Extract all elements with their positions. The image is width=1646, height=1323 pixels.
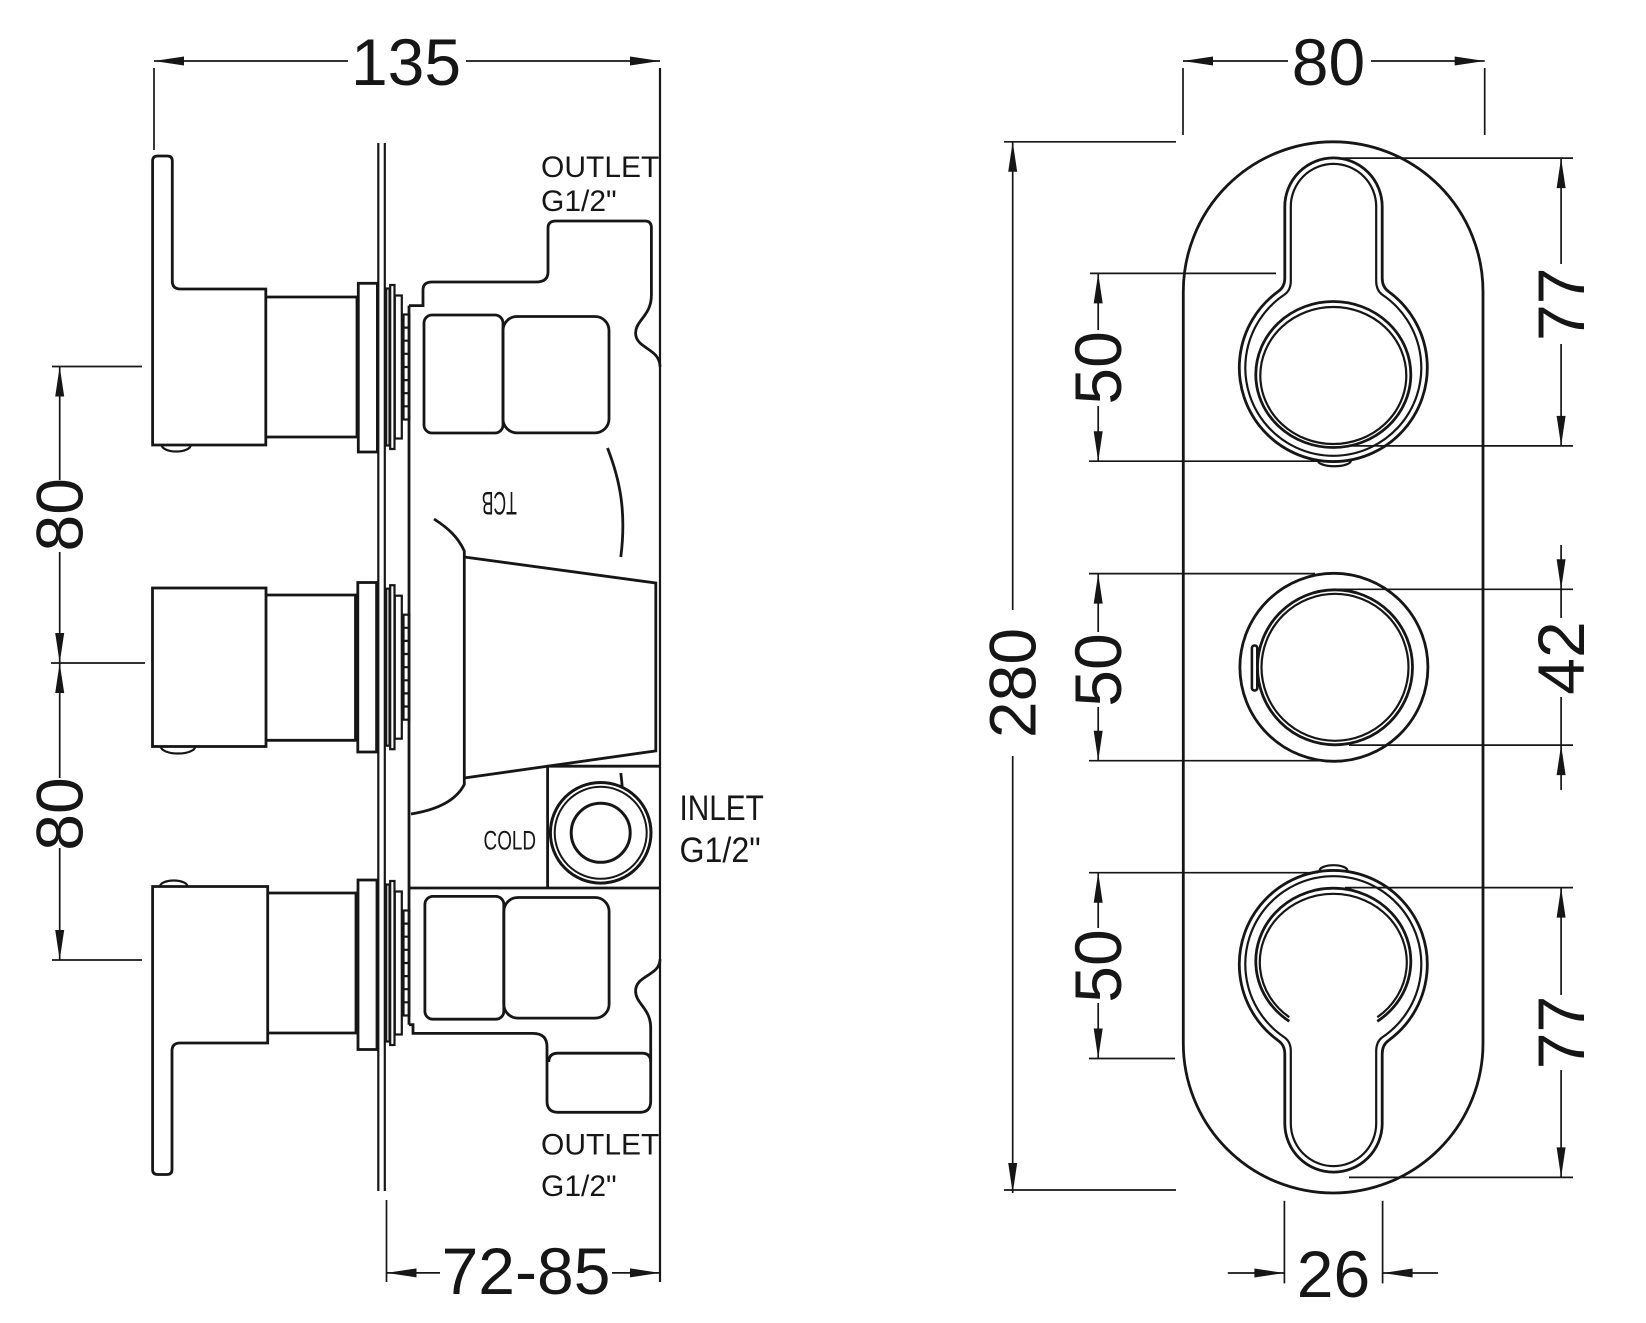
- svg-text:50: 50: [1061, 929, 1135, 1002]
- svg-text:INLET: INLET: [680, 789, 764, 828]
- svg-text:80: 80: [23, 777, 97, 850]
- svg-text:77: 77: [1524, 996, 1598, 1069]
- svg-text:50: 50: [1061, 331, 1135, 404]
- svg-text:72-85: 72-85: [442, 1234, 611, 1308]
- svg-text:G1/2": G1/2": [541, 1170, 617, 1203]
- svg-text:TCB: TCB: [482, 485, 517, 520]
- svg-text:80: 80: [23, 478, 97, 551]
- svg-text:COLD: COLD: [484, 825, 536, 855]
- svg-text:OUTLET: OUTLET: [541, 1128, 659, 1161]
- svg-text:77: 77: [1524, 268, 1598, 341]
- svg-text:26: 26: [1297, 1237, 1370, 1311]
- svg-text:50: 50: [1061, 633, 1135, 706]
- svg-text:42: 42: [1524, 621, 1598, 694]
- svg-text:OUTLET: OUTLET: [541, 151, 659, 184]
- svg-text:280: 280: [976, 628, 1050, 738]
- svg-text:80: 80: [1292, 25, 1365, 99]
- svg-text:G1/2": G1/2": [541, 185, 617, 218]
- svg-text:G1/2": G1/2": [680, 832, 761, 871]
- svg-text:135: 135: [351, 25, 461, 99]
